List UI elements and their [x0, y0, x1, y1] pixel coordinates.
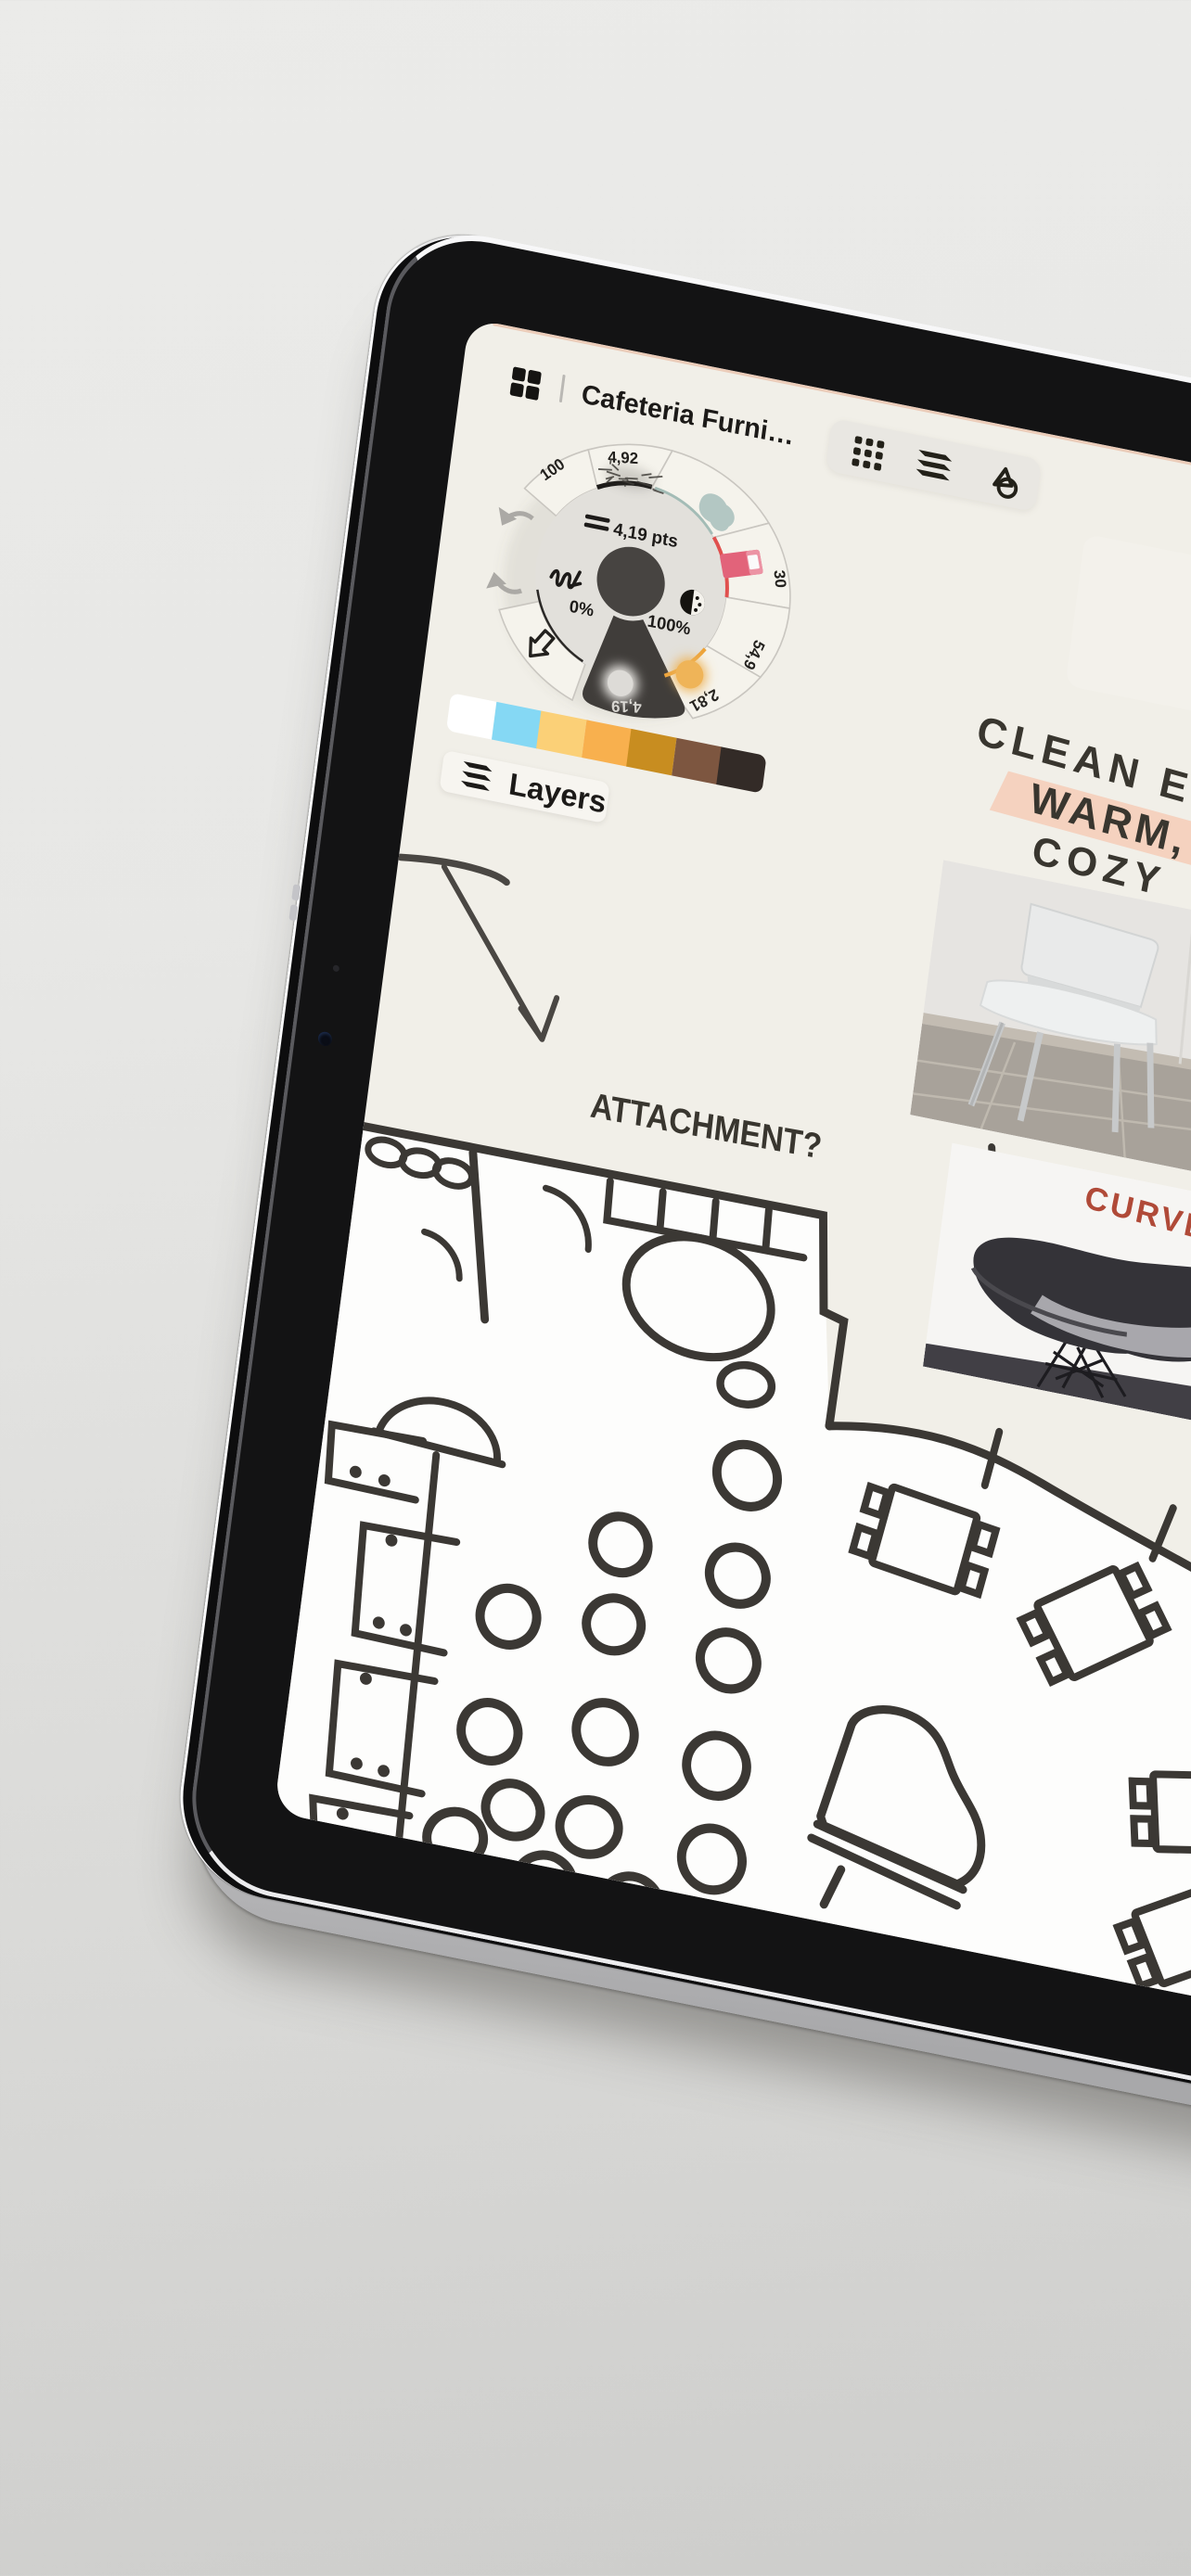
svg-text:30: 30	[770, 569, 789, 588]
